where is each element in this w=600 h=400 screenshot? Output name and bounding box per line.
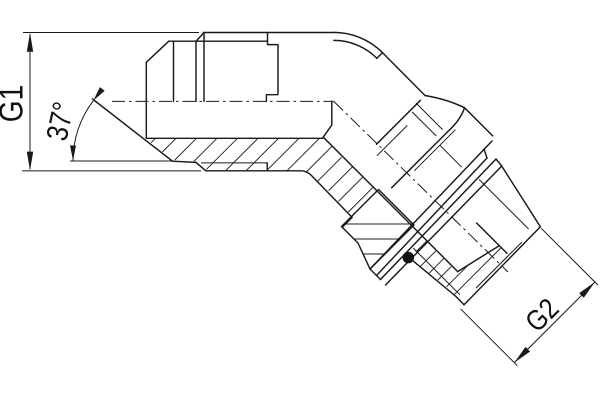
- svg-text:G1: G1: [0, 85, 30, 122]
